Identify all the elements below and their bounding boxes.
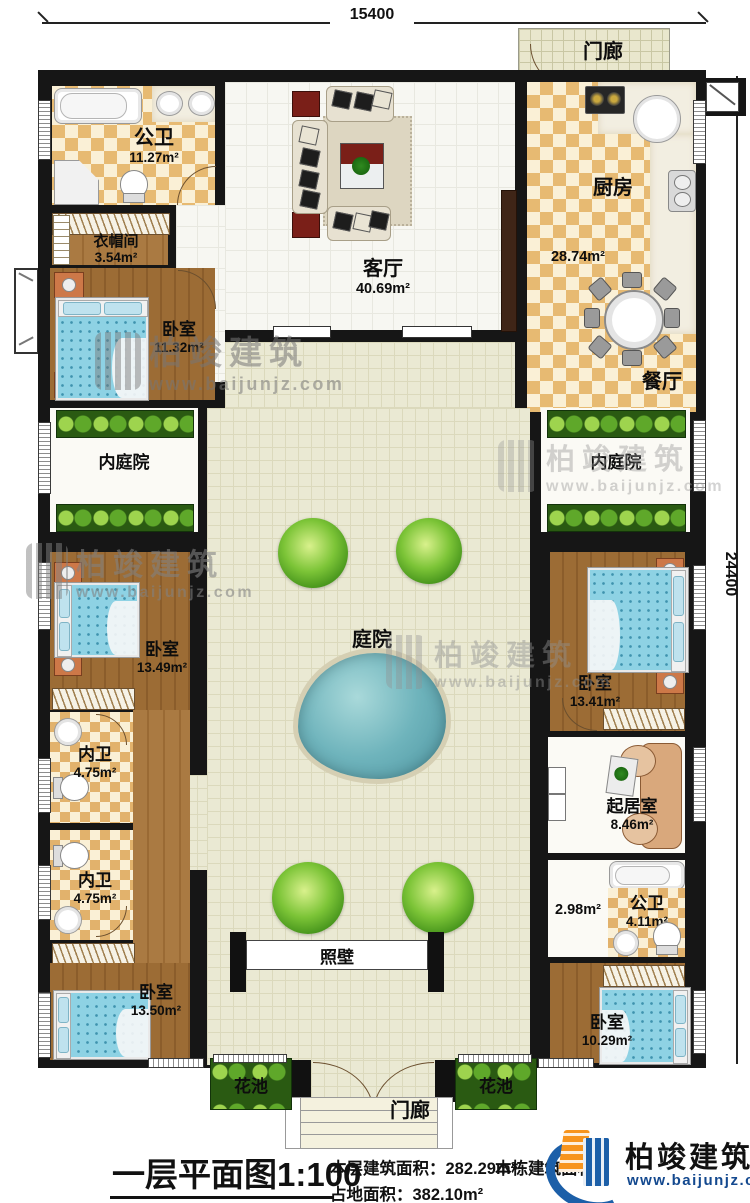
sink-icon (188, 91, 215, 116)
bathtub-icon (609, 861, 685, 890)
footer-logo-brand: 柏竣建筑 (625, 1134, 750, 1176)
dining-chair-icon (664, 308, 680, 328)
room-name-living: 客厅 (363, 258, 403, 281)
wardrobe-icon (52, 688, 135, 710)
tv-cabinet-icon (501, 190, 517, 332)
room-name-porch-top: 门廊 (583, 41, 623, 64)
room-area-bedroom-5: 10.29m² (582, 1033, 632, 1049)
toilet-icon (120, 170, 146, 203)
low-screen (402, 326, 472, 338)
room-name-dining: 餐厅 (642, 371, 682, 394)
room-area-cloakroom: 3.54m² (95, 250, 138, 266)
low-screen (273, 326, 331, 338)
room-area-bedroom-4: 13.50m² (131, 1003, 181, 1019)
plan-body: 公卫 11.27m² 衣帽间 3.54m² (38, 70, 706, 1068)
room-name-cloakroom: 衣帽间 (93, 233, 138, 250)
window-icon (213, 1054, 287, 1063)
room-area-hall: 2.98m² (555, 902, 601, 919)
bed-icon (588, 568, 688, 672)
floor-plan-canvas: 15400 24400 门廊 公卫 11.27m² (0, 0, 750, 1203)
land-area-label: 占地面积： (330, 1186, 413, 1203)
end-table-icon (292, 212, 320, 238)
window-icon (148, 1058, 204, 1068)
room-name-bedroom-3: 卧室 (578, 674, 612, 694)
window-icon (38, 562, 51, 630)
bed-icon (55, 583, 139, 657)
screen-wall-pillar (428, 932, 444, 992)
footer-logo-site: www.baijunjz.com (627, 1172, 750, 1189)
tree-icon (278, 518, 348, 588)
room-area-bath-inner-1: 4.75m² (74, 765, 117, 781)
right-dimension-label: 24400 (721, 534, 739, 614)
window-icon (38, 100, 51, 160)
sofa-icon (327, 206, 391, 241)
room-name-porch-bottom: 门廊 (390, 1100, 430, 1123)
room-area-living: 40.69m² (356, 281, 410, 298)
room-inner-courtyard-left: 内庭院 (50, 408, 198, 532)
room-name-bedroom-5: 卧室 (590, 1013, 624, 1033)
room-area-bedroom-1: 11.32m² (154, 340, 204, 356)
wardrobe-icon (52, 943, 135, 965)
room-name-bedroom-1: 卧室 (162, 320, 196, 340)
shower-icon (54, 160, 99, 205)
bedroom3-door-arc (562, 698, 597, 731)
sink-icon (613, 930, 639, 956)
room-kitchen-dining: 厨房 28.74m² 餐厅 (527, 82, 696, 412)
tree-icon (396, 518, 462, 584)
room-bedroom-3: 卧室 13.41m² (550, 552, 685, 731)
room-inner-courtyard-right: 内庭院 (541, 408, 690, 532)
double-door-icon (548, 794, 566, 821)
kitchen-round-table (633, 95, 681, 143)
top-dimension-label: 15400 (330, 6, 414, 24)
plan-title-underline (110, 1196, 334, 1199)
room-name-bath-inner-2: 内卫 (78, 871, 112, 891)
room-hall: 2.98m² (548, 860, 608, 957)
room-bath-inner-2: 内卫 4.75m² (50, 830, 133, 940)
room-courtyard: 庭院 照壁 (207, 408, 530, 1065)
wardrobe-icon (603, 965, 685, 987)
room-bedroom-2: 卧室 13.49m² (50, 552, 190, 710)
room-bath-inner-1: 内卫 4.75m² (50, 712, 133, 823)
planter-strip (56, 410, 194, 438)
room-name-bedroom-2: 卧室 (145, 640, 179, 660)
room-name-bedroom-4: 卧室 (139, 983, 173, 1003)
room-cloakroom: 衣帽间 3.54m² (52, 213, 168, 265)
land-area-value: 382.10m² (413, 1186, 484, 1203)
window-icon (38, 992, 51, 1058)
window-icon (38, 422, 51, 494)
window-icon (538, 1058, 594, 1068)
floor-area-text: 本层建筑面积：282.29m² (330, 1155, 516, 1179)
dining-chair-icon (587, 276, 612, 301)
room-area-kitchen: 28.74m² (551, 249, 605, 266)
sofa-icon (326, 86, 394, 122)
dining-chair-icon (584, 308, 600, 328)
nightstand-icon (54, 272, 84, 298)
window-icon (458, 1054, 532, 1063)
bed-icon (56, 298, 148, 400)
flower-bed-right: 花池 (455, 1058, 537, 1110)
nightstand-icon (656, 670, 684, 694)
room-public-bath-1: 公卫 11.27m² (52, 86, 215, 205)
bathtub-icon (54, 88, 142, 124)
plan-title-text: 一层平面图 (112, 1156, 277, 1193)
planter-strip (547, 504, 686, 532)
dining-chair-icon (587, 334, 612, 359)
room-bedroom-5: 卧室 10.29m² (550, 963, 685, 1063)
flower-bed-right-label: 花池 (479, 1072, 513, 1097)
pond (293, 648, 451, 784)
window-icon (693, 100, 706, 164)
toilet-icon (53, 842, 89, 867)
planter-strip (547, 410, 686, 438)
room-area-bath-inner-2: 4.75m² (74, 891, 117, 907)
desk-icon (605, 755, 638, 797)
dining-chair-icon (622, 272, 642, 288)
room-public-bath-2: 公卫 4.11m² (608, 860, 685, 957)
room-name-public-bath-1: 公卫 (134, 127, 174, 150)
bath-door-arc (96, 906, 127, 937)
top-dimension-tick-right (697, 11, 708, 22)
footer-logo-icon (545, 1126, 623, 1198)
left-bay-box (14, 268, 39, 354)
dining-chair-icon (622, 350, 642, 366)
nightstand-icon (54, 654, 82, 676)
wardrobe-icon (603, 708, 685, 730)
room-name-kitchen: 厨房 (593, 177, 633, 200)
room-area-bedroom-2: 13.49m² (137, 660, 187, 676)
room-name-public-bath-2: 公卫 (630, 894, 664, 914)
screen-wall-label: 照壁 (320, 943, 354, 968)
sink-icon (54, 718, 82, 746)
courtyard-entry-platform (225, 342, 515, 410)
sink-icon (156, 91, 183, 116)
window-icon (38, 758, 51, 813)
plan-title: 一层平面图1:100 (112, 1148, 361, 1196)
plant-icon (352, 157, 370, 175)
screen-wall: 照壁 (246, 940, 428, 970)
nightstand-icon (54, 562, 82, 584)
top-dimension-tick-left (37, 11, 48, 22)
land-area-text: 占地面积：382.10m² (330, 1181, 483, 1203)
corner-entry-niche (700, 78, 746, 116)
floor-area-label: 本层建筑面积： (330, 1160, 446, 1178)
sink-icon (54, 906, 82, 934)
double-door-icon (548, 767, 566, 794)
room-area-sitting: 8.46m² (611, 817, 654, 833)
tree-icon (402, 862, 474, 934)
room-name-sitting: 起居室 (607, 797, 658, 817)
dining-table-icon (604, 290, 664, 350)
toilet-icon (653, 922, 679, 955)
window-icon (693, 747, 706, 822)
flower-bed-left-label: 花池 (234, 1072, 268, 1097)
room-name-inner-courtyard-right: 内庭院 (591, 453, 642, 473)
room-bedroom-4: 卧室 13.50m² (50, 963, 190, 1060)
room-living: 客厅 40.69m² (225, 82, 515, 330)
room-sitting: 起居室 8.46m² (548, 737, 685, 853)
sofa-icon (292, 120, 328, 214)
kitchen-sink-icon (668, 170, 696, 212)
footer-logo: 柏竣建筑 www.baijunjz.com (545, 1126, 750, 1200)
room-name-inner-courtyard-left: 内庭院 (99, 453, 150, 473)
window-icon (693, 990, 706, 1054)
room-name-bath-inner-1: 内卫 (78, 745, 112, 765)
screen-wall-pillar (230, 932, 246, 992)
bath1-door-arc (177, 166, 216, 205)
room-area-public-bath-1: 11.27m² (129, 150, 179, 166)
planter-strip (56, 504, 194, 532)
bath-door-arc (96, 714, 127, 745)
window-icon (693, 420, 706, 492)
tree-icon (272, 862, 344, 934)
flower-bed-left: 花池 (210, 1058, 292, 1110)
end-table-icon (292, 91, 320, 117)
stove-icon (585, 86, 625, 114)
window-icon (38, 865, 51, 920)
window-icon (693, 565, 706, 630)
